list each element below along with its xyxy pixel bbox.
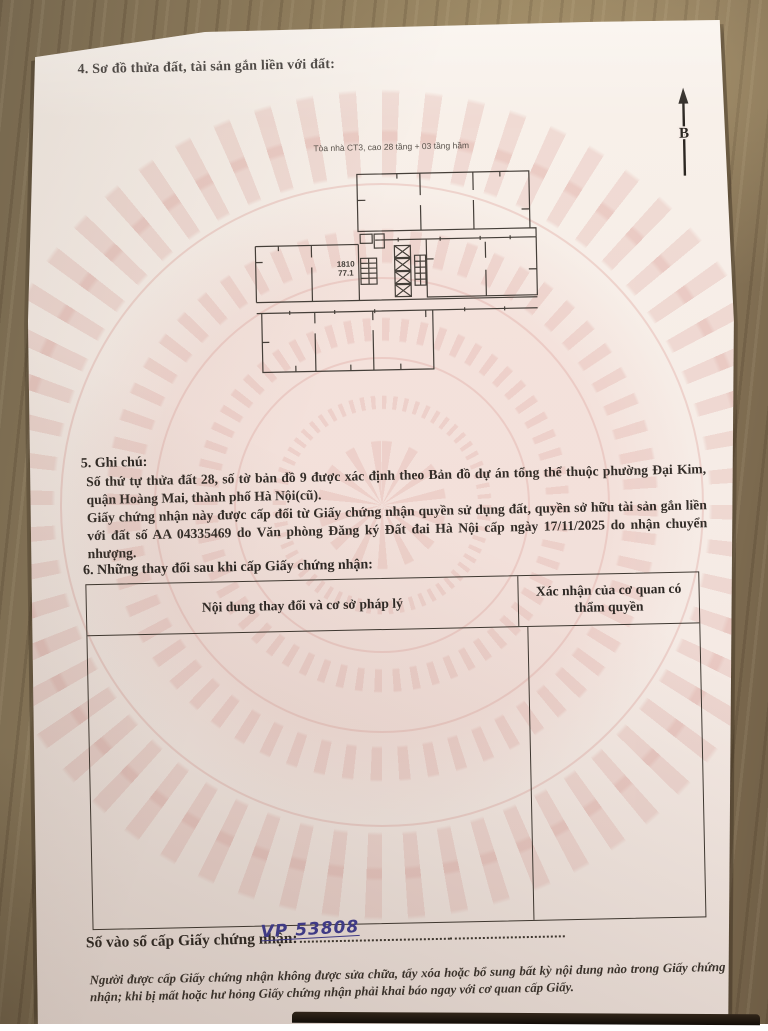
certificate-paper: 4. Sơ đồ thửa đất, tài sản gắn liền với … [28,20,736,1024]
north-arrow-icon: B [671,85,697,181]
floor-plan: 1810 77.1 [247,157,542,381]
table-cell-content-empty [87,627,534,929]
table-header-content-col: Nội dung thay đổi và cơ sở pháp lý [86,576,519,635]
floor-plan-caption: Tòa nhà CT3, cao 28 tầng + 03 tầng hầm [246,139,536,155]
north-label: B [679,126,689,142]
section5-heading: 5. Ghi chú: [81,455,148,472]
changes-table-body-row [87,623,705,929]
dotted-leader [449,922,564,939]
changes-table: Nội dung thay đổi và cơ sở pháp lý Xác n… [85,571,706,930]
table-cell-confirm-empty [528,623,705,920]
footer-note: Người được cấp Giấy chứng nhận không đượ… [89,959,726,1007]
section4-heading: 4. Sơ đồ thửa đất, tài sản gắn liền với … [77,57,335,78]
document-content: 4. Sơ đồ thửa đất, tài sản gắn liền với … [20,13,749,1031]
section5-notes: Số thứ tự thửa đất 28, số tờ bản đồ 9 đư… [86,460,708,563]
photo-of-land-certificate-page: { "doc": { "section4_heading": "4. Sơ đồ… [0,0,768,1024]
unit-number-label: 1810 [337,260,356,269]
unit-area-label: 77.1 [338,269,354,278]
table-header-confirm-col: Xác nhận của cơ quan có thẩm quyền [518,572,699,626]
